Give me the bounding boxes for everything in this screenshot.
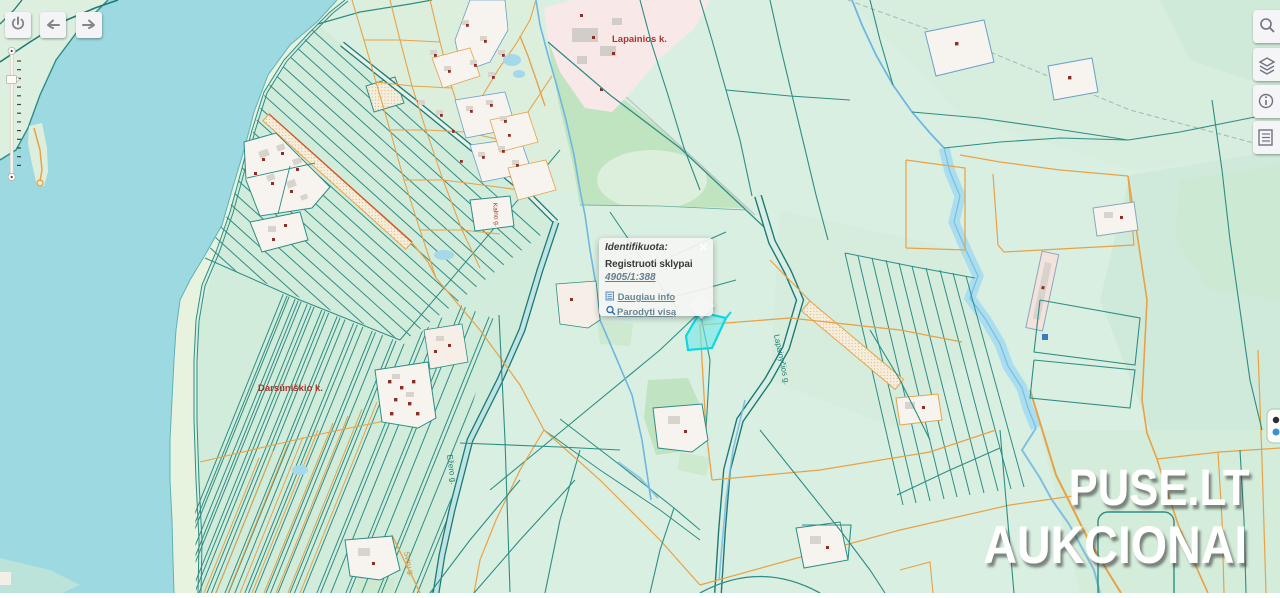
svg-text:Lapainios k.: Lapainios k. xyxy=(612,34,667,45)
svg-text:Darsūniškio k.: Darsūniškio k. xyxy=(258,383,323,394)
